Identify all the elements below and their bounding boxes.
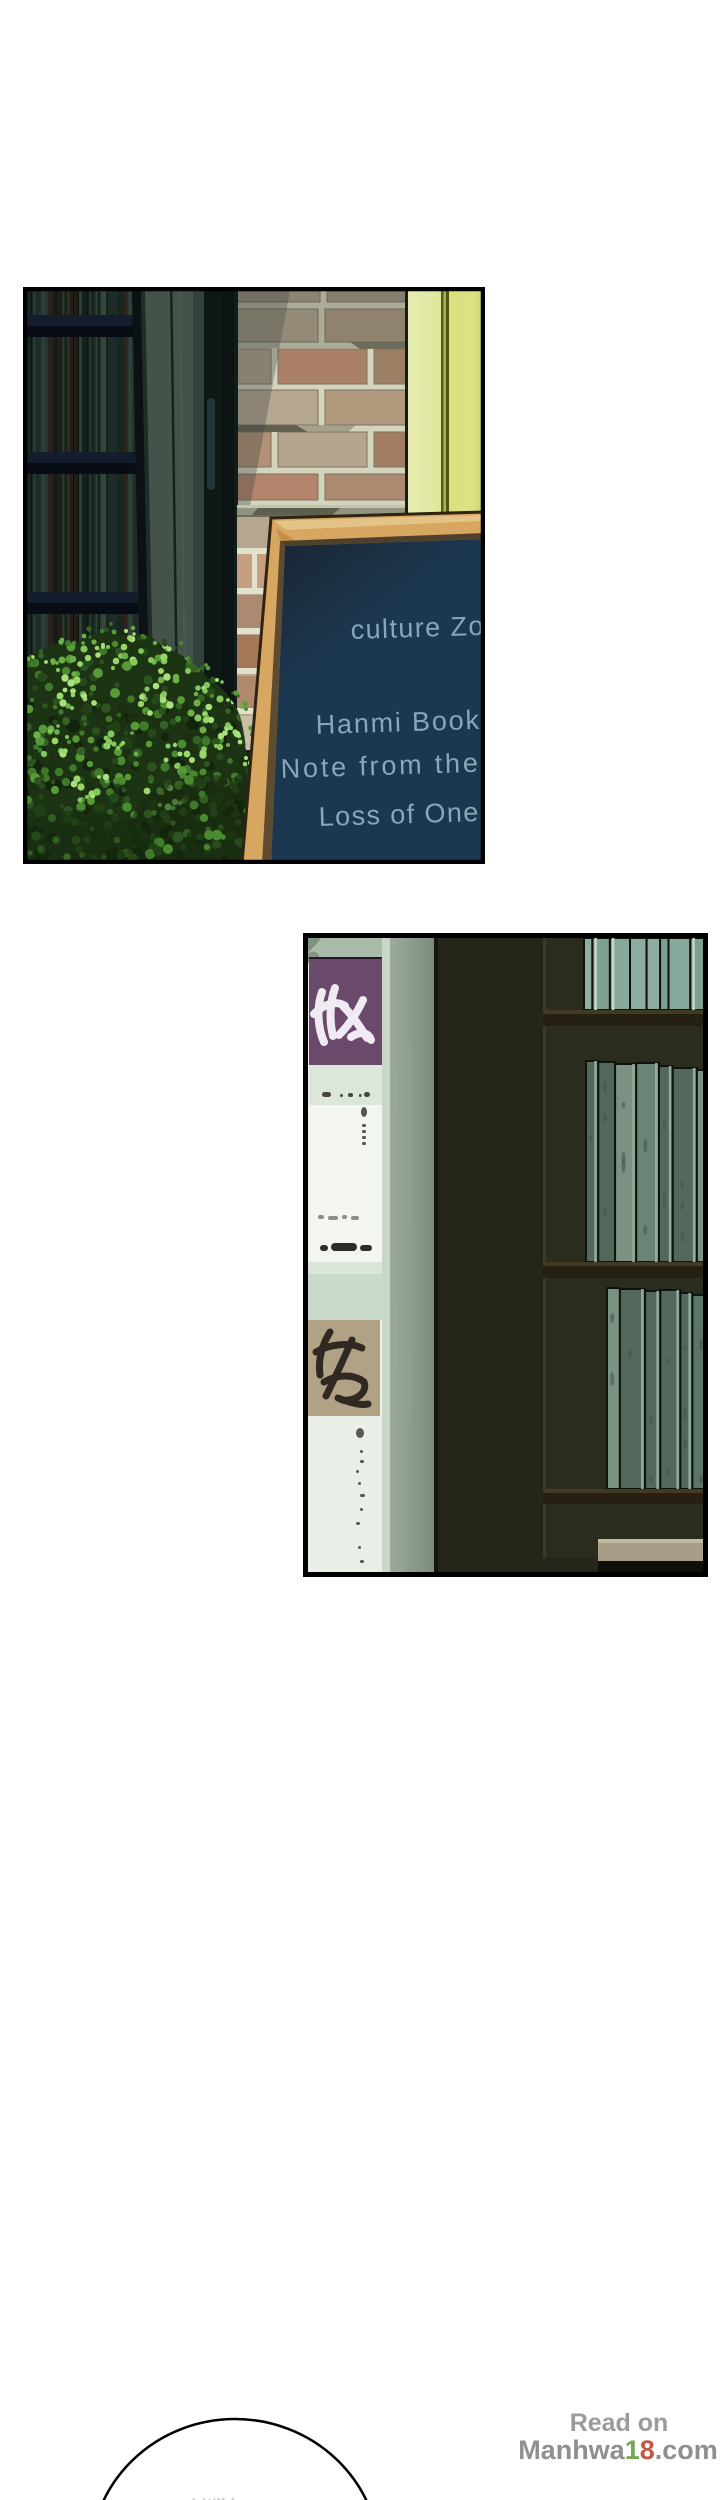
svg-text:Manhwa18.com: Manhwa18.com [518,2435,718,2465]
svg-text:Read on: Read on [570,2409,669,2437]
svg-text:I-It'll be...: I-It'll be... [192,2495,265,2500]
svg-text:Loss of Ones: Loss of Ones [318,796,485,832]
svg-text:Note from the: Note from the [280,748,481,784]
svg-text:Hanmi Books t: Hanmi Books t [315,704,485,740]
svg-text:culture Zo: culture Zo [350,611,485,645]
